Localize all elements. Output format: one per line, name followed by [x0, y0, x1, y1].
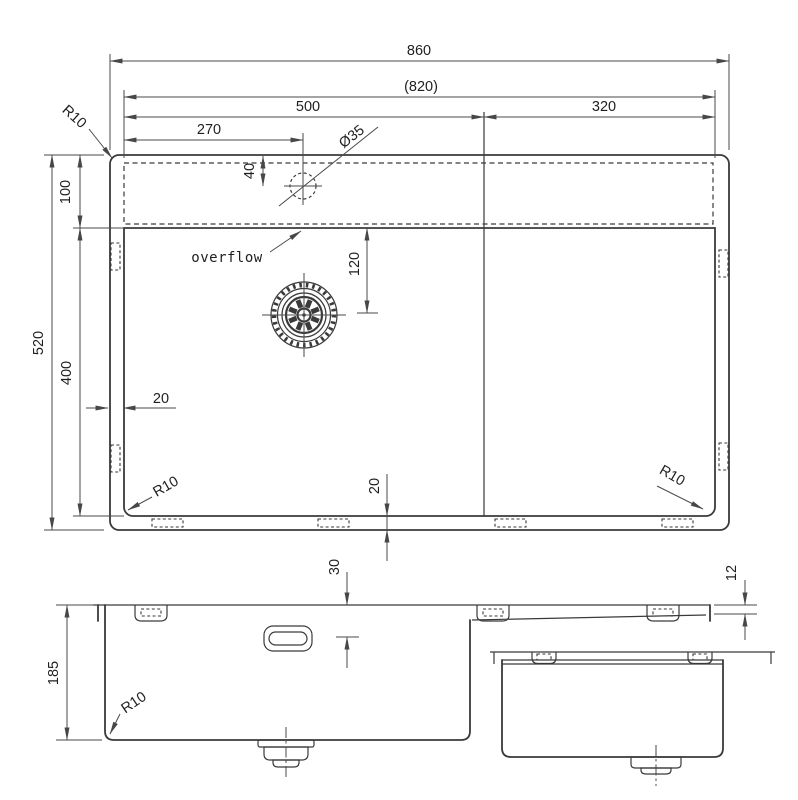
tray-section-outline — [502, 660, 723, 757]
radius-bowl-left-label: R10 — [150, 473, 181, 500]
extension-lines-top — [44, 54, 729, 530]
dim-inner-width: (820) — [404, 79, 438, 95]
sink-outer-outline — [110, 155, 729, 530]
radius-front-label: R10 — [118, 689, 149, 717]
dim-bowl-width: 500 — [296, 99, 320, 115]
mounting-clips-right-view — [532, 652, 712, 664]
dim-overall-width: 860 — [407, 43, 431, 59]
overflow-label: overflow — [191, 250, 263, 266]
mounting-clips-front — [135, 605, 679, 621]
mounting-clips-plan — [111, 243, 728, 527]
dim-drain-offset: 120 — [347, 252, 363, 276]
dim-deck-depth: 100 — [58, 180, 74, 204]
sink-drawing-canvas: 860 (820) 500 320 270 Ø35 40 100 520 400… — [0, 0, 798, 800]
overflow-slot — [264, 626, 312, 651]
dim-bowl-depth: 185 — [46, 661, 62, 685]
dim-ledge-drop: 12 — [724, 565, 740, 581]
ledge-drop-dimension: 12 — [714, 565, 757, 640]
tap-dia-leader — [279, 127, 378, 206]
dim-rim-left: 20 — [153, 391, 169, 407]
deck-hidden-edge — [124, 163, 713, 224]
tap-hole — [279, 127, 378, 206]
radius-bowl-right-label: R10 — [656, 462, 687, 489]
right-section-view — [490, 652, 775, 786]
dim-tap-from-edge: 40 — [242, 163, 258, 179]
dim-tap-offset: 270 — [197, 122, 221, 138]
right-drain-fitting — [631, 745, 681, 786]
top-view-dimensions: 860 (820) 500 320 270 Ø35 40 100 520 400… — [31, 43, 729, 561]
dim-bowl-length: 400 — [59, 361, 75, 385]
radius-top-left-label: R10 — [59, 102, 89, 132]
technical-drawing-page: 860 (820) 500 320 270 Ø35 40 100 520 400… — [0, 0, 798, 800]
dim-rim-bottom: 20 — [367, 478, 383, 494]
bowl-section-outline — [105, 605, 470, 740]
dim-overflow-drop: 30 — [327, 559, 343, 575]
top-view — [110, 112, 729, 530]
front-section-view: 185 30 R10 — [46, 559, 710, 779]
dim-right-width: 320 — [592, 99, 616, 115]
bowl-opening-outline — [124, 228, 715, 516]
dim-depth-total: 520 — [31, 331, 47, 355]
front-drain-fitting — [258, 727, 314, 779]
